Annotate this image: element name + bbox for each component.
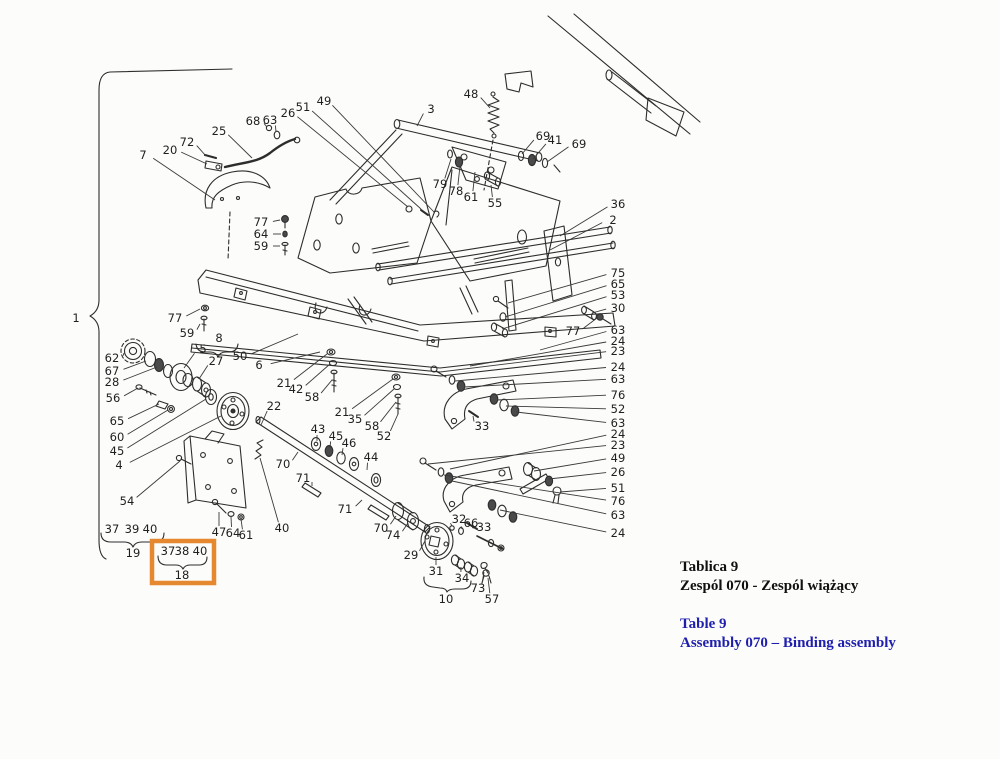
- leader-line-35: [365, 389, 395, 415]
- part-label-38: 38: [175, 544, 190, 558]
- part-label-22: 22: [267, 399, 282, 413]
- leader-line-67: [124, 361, 147, 369]
- part-label-5: 5: [199, 342, 206, 356]
- leader-line-20: [181, 152, 207, 164]
- leader-line-23: [440, 352, 606, 372]
- part-label-40: 40: [275, 521, 290, 535]
- leader-line-63: [516, 412, 606, 422]
- part-label-18: 18: [175, 568, 190, 582]
- leader-line-70: [292, 452, 298, 460]
- leader-line-26: [297, 117, 408, 207]
- part-label-56: 56: [106, 391, 121, 405]
- part-label-55: 55: [488, 196, 503, 210]
- part-label-28: 28: [105, 375, 120, 389]
- leader-line-77: [273, 220, 280, 221]
- leader-line-51: [312, 111, 421, 209]
- leader-line-54: [137, 461, 180, 497]
- leader-line-70: [390, 516, 396, 524]
- leader-line-21: [352, 379, 393, 409]
- part-label-62: 62: [105, 351, 120, 365]
- part-label-24: 24: [611, 526, 626, 540]
- caption-table-pl: Tablica 9: [680, 558, 980, 577]
- part-label-7: 7: [139, 148, 146, 162]
- part-label-61: 61: [464, 190, 479, 204]
- part-label-54: 54: [120, 494, 135, 508]
- part-label-40: 40: [143, 522, 158, 536]
- part-label-41: 41: [548, 133, 563, 147]
- part-label-10: 10: [439, 592, 454, 606]
- part-label-61: 61: [239, 528, 254, 542]
- part-label-71: 71: [338, 502, 353, 516]
- part-label-43: 43: [311, 422, 326, 436]
- caption-assembly-pl: Zespól 070 - Zespól wiążący: [680, 577, 980, 596]
- leader-line-72: [197, 146, 206, 156]
- leader-line-52: [506, 406, 606, 409]
- caption-block: Tablica 9 Zespól 070 - Zespól wiążący Ta…: [680, 558, 980, 653]
- leader-line-66: [461, 526, 462, 529]
- part-label-79: 79: [433, 177, 448, 191]
- part-label-37: 37: [161, 544, 176, 558]
- leader-line-75: [508, 275, 606, 303]
- part-label-35: 35: [348, 412, 363, 426]
- part-label-59: 59: [180, 326, 195, 340]
- leader-line-60: [128, 410, 168, 434]
- part-label-63: 63: [611, 508, 626, 522]
- leader-line-30: [592, 309, 606, 313]
- part-label-68: 68: [246, 114, 261, 128]
- leader-line-24: [455, 368, 606, 382]
- part-label-37: 37: [105, 522, 120, 536]
- part-label-72: 72: [180, 135, 195, 149]
- part-label-3: 3: [427, 102, 434, 116]
- part-label-42: 42: [289, 382, 304, 396]
- leader-line-58: [381, 402, 397, 422]
- leader-line-59: [197, 324, 200, 330]
- part-label-78: 78: [449, 184, 464, 198]
- part-label-4: 4: [115, 458, 122, 472]
- part-label-60: 60: [110, 430, 125, 444]
- leader-line-77: [186, 309, 200, 316]
- part-label-51: 51: [611, 481, 626, 495]
- part-label-1: 1: [72, 311, 79, 325]
- part-label-48: 48: [464, 87, 479, 101]
- leader-line-5: [184, 353, 195, 368]
- leader-line-26: [549, 473, 606, 479]
- part-label-52: 52: [611, 402, 626, 416]
- part-label-63: 63: [611, 372, 626, 386]
- part-label-26: 26: [281, 106, 296, 120]
- part-label-51: 51: [296, 100, 311, 114]
- part-label-29: 29: [404, 548, 419, 562]
- part-label-49: 49: [317, 94, 332, 108]
- leader-line-24: [450, 435, 606, 469]
- part-label-74: 74: [386, 528, 401, 542]
- leader-line-27: [199, 365, 208, 379]
- leader-line-63: [464, 379, 606, 387]
- caption-assembly-en: Assembly 070 – Binding assembly: [680, 634, 980, 653]
- leader-line-56: [124, 388, 138, 396]
- leader-line-49: [534, 459, 606, 471]
- leader-line-71: [356, 500, 362, 506]
- part-label-19: 19: [126, 546, 141, 560]
- leader-line-63: [452, 481, 606, 514]
- caption-table-en: Table 9: [680, 615, 980, 634]
- part-label-39: 39: [125, 522, 140, 536]
- leader-line-69: [522, 140, 534, 154]
- leader-line-65: [128, 404, 159, 419]
- part-label-30: 30: [611, 301, 626, 315]
- part-label-26: 26: [611, 465, 626, 479]
- part-label-71: 71: [296, 471, 311, 485]
- leader-line-23: [428, 446, 606, 464]
- part-label-45: 45: [110, 444, 125, 458]
- part-label-50: 50: [233, 349, 248, 363]
- leader-line-48: [481, 98, 490, 108]
- leader-line-50: [251, 334, 298, 354]
- leader-line-49: [332, 105, 434, 212]
- leader-line-77: [584, 318, 597, 328]
- leader-line-57: [488, 578, 490, 593]
- part-label-25: 25: [212, 124, 227, 138]
- part-label-40: 40: [193, 544, 208, 558]
- part-label-23: 23: [611, 344, 626, 358]
- leader-line-52: [390, 414, 398, 431]
- part-label-47: 47: [212, 525, 227, 539]
- part-label-59: 59: [254, 239, 269, 253]
- part-label-49: 49: [611, 451, 626, 465]
- leader-line-58: [321, 380, 332, 393]
- leader-line-79: [445, 159, 451, 179]
- group-brace-1: [90, 69, 232, 559]
- part-label-20: 20: [163, 143, 178, 157]
- part-label-23: 23: [611, 438, 626, 452]
- part-label-69: 69: [572, 137, 587, 151]
- leader-line-62: [123, 353, 124, 356]
- part-label-52: 52: [377, 429, 392, 443]
- leader-line-3: [417, 114, 423, 126]
- part-label-33: 33: [477, 520, 492, 534]
- leader-line-25: [228, 135, 252, 158]
- part-label-46: 46: [342, 436, 357, 450]
- part-label-31: 31: [429, 564, 444, 578]
- part-label-44: 44: [364, 450, 379, 464]
- leader-line-69: [547, 147, 569, 162]
- part-label-73: 73: [471, 581, 486, 595]
- machine-line-art: [90, 14, 700, 592]
- part-label-53: 53: [611, 288, 626, 302]
- part-label-8: 8: [215, 331, 222, 345]
- part-label-76: 76: [611, 494, 626, 508]
- leader-line-76: [497, 395, 606, 400]
- part-label-36: 36: [611, 197, 626, 211]
- part-label-76: 76: [611, 388, 626, 402]
- part-label-6: 6: [255, 358, 262, 372]
- part-label-58: 58: [305, 390, 320, 404]
- part-label-65: 65: [110, 414, 125, 428]
- part-label-2: 2: [609, 213, 616, 227]
- part-label-27: 27: [209, 354, 224, 368]
- part-label-57: 57: [485, 592, 500, 606]
- part-label-77: 77: [168, 311, 183, 325]
- part-label-34: 34: [455, 571, 470, 585]
- part-label-70: 70: [276, 457, 291, 471]
- leader-line-51: [560, 488, 606, 492]
- leader-line-28: [123, 367, 157, 380]
- part-label-63: 63: [263, 113, 278, 127]
- part-label-77: 77: [566, 324, 581, 338]
- part-label-33: 33: [475, 419, 490, 433]
